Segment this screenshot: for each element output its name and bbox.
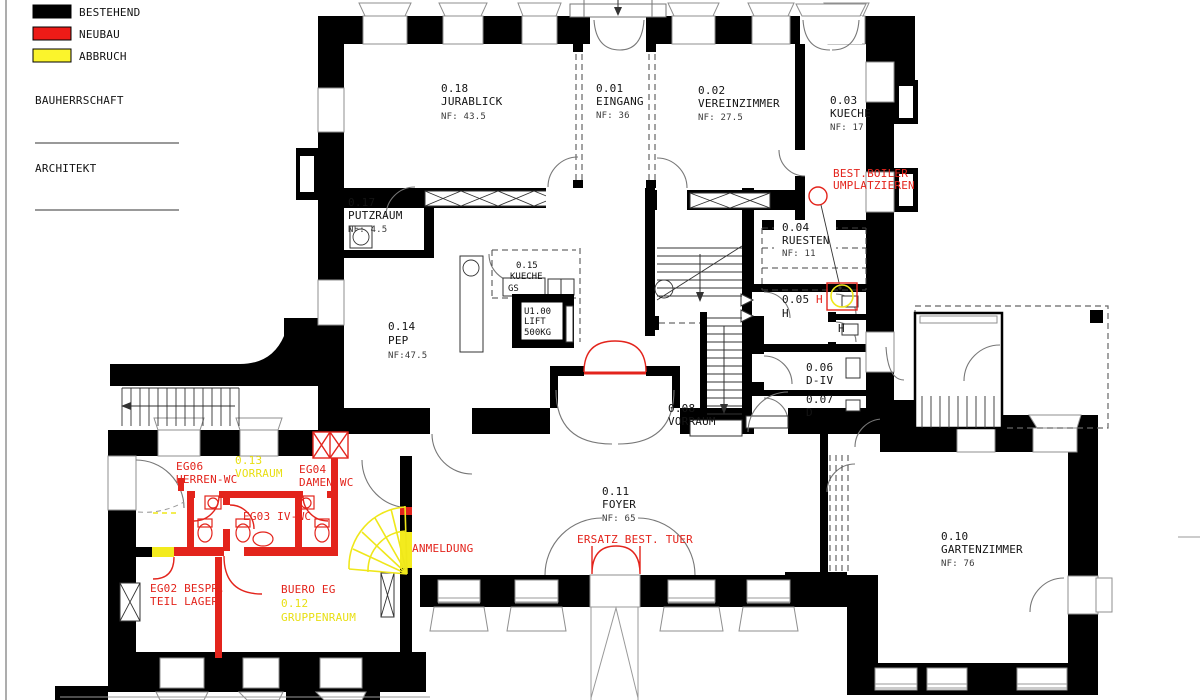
svg-text:EG04: EG04 xyxy=(299,463,326,476)
svg-text:NF: 11: NF: 11 xyxy=(782,249,816,259)
legend-swatch-neubau xyxy=(33,27,71,40)
bauherrschaft-label: BAUHERRSCHAFT xyxy=(35,94,124,107)
svg-text:0.08: 0.08 xyxy=(668,402,695,415)
anmeldung-label: ANMELDUNG xyxy=(412,542,473,555)
svg-text:EG02 BESPR.: EG02 BESPR. xyxy=(150,582,225,595)
shaft-x-icon xyxy=(313,432,348,458)
eg03-label: EG03 IV-WC xyxy=(243,510,311,523)
svg-text:PUTZRAUM: PUTZRAUM xyxy=(348,209,403,222)
svg-text:DAMEN-WC: DAMEN-WC xyxy=(299,476,354,489)
svg-text:H: H xyxy=(782,307,789,320)
svg-text:NF: 65: NF: 65 xyxy=(602,514,636,524)
svg-text:VORRAUM: VORRAUM xyxy=(668,415,716,428)
svg-text:KUECHE: KUECHE xyxy=(510,272,543,282)
svg-text:0.11: 0.11 xyxy=(602,485,629,498)
svg-text:RUESTEN: RUESTEN xyxy=(782,234,830,247)
room-label-06: 0.06 D-IV xyxy=(806,361,833,387)
svg-text:TEIL LAGER: TEIL LAGER xyxy=(150,595,218,608)
svg-text:0.05: 0.05 xyxy=(782,293,809,306)
svg-text:0.18: 0.18 xyxy=(441,82,468,95)
svg-text:0.17: 0.17 xyxy=(348,196,375,209)
abbruch-opening xyxy=(152,547,174,557)
svg-text:D: D xyxy=(806,406,813,419)
svg-text:HERREN-WC: HERREN-WC xyxy=(176,473,237,486)
svg-text:BUERO EG: BUERO EG xyxy=(281,583,336,596)
legend-swatch-abbruch xyxy=(33,49,71,62)
svg-text:0.06: 0.06 xyxy=(806,361,833,374)
ersatz-tuer-label: ERSATZ BEST. TUER xyxy=(577,533,693,546)
boiler-note-line2: UMPLATZIEREN xyxy=(833,179,915,192)
legend-label-neubau: NEUBAU xyxy=(79,28,120,41)
svg-text:VEREINZIMMER: VEREINZIMMER xyxy=(698,97,780,110)
svg-text:NF: 17: NF: 17 xyxy=(830,123,864,133)
eg02-label: EG02 BESPR. TEIL LAGER xyxy=(150,582,225,608)
svg-text:KUECHE: KUECHE xyxy=(830,107,871,120)
svg-text:0.03: 0.03 xyxy=(830,94,857,107)
gs-label: GS xyxy=(508,284,519,294)
svg-text:JURABLICK: JURABLICK xyxy=(441,95,503,108)
svg-text:D-IV: D-IV xyxy=(806,374,833,387)
svg-text:NF: 43.5: NF: 43.5 xyxy=(441,112,486,122)
svg-text:0.15: 0.15 xyxy=(516,261,538,271)
svg-text:GRUPPENRAUM: GRUPPENRAUM xyxy=(281,611,356,624)
svg-text:FOYER: FOYER xyxy=(602,498,636,511)
svg-text:0.07: 0.07 xyxy=(806,393,833,406)
svg-text:PEP: PEP xyxy=(388,334,409,347)
svg-text:EINGANG: EINGANG xyxy=(596,95,644,108)
svg-text:0.13: 0.13 xyxy=(235,454,262,467)
svg-text:0.04: 0.04 xyxy=(782,221,809,234)
svg-text:0.10: 0.10 xyxy=(941,530,968,543)
svg-text:NF:47.5: NF:47.5 xyxy=(388,351,427,361)
svg-text:VORRAUM: VORRAUM xyxy=(235,467,283,480)
svg-text:0.14: 0.14 xyxy=(388,320,415,333)
legend-label-bestehend: BESTEHEND xyxy=(79,6,140,19)
floorplan-canvas: BESTEHEND NEUBAU ABBRUCH BAUHERRSCHAFT A… xyxy=(0,0,1200,700)
legend-swatch-bestehend xyxy=(33,5,71,18)
svg-text:NF: 4.5: NF: 4.5 xyxy=(348,225,387,235)
svg-text:500KG: 500KG xyxy=(524,328,551,338)
h-red-label: H xyxy=(816,293,823,306)
svg-text:LIFT: LIFT xyxy=(524,317,546,327)
architekt-label: ARCHITEKT xyxy=(35,162,97,175)
svg-text:NF: 76: NF: 76 xyxy=(941,559,975,569)
svg-text:NF: 27.5: NF: 27.5 xyxy=(698,113,743,123)
svg-text:U1.00: U1.00 xyxy=(524,307,551,317)
svg-text:0.02: 0.02 xyxy=(698,84,725,97)
svg-text:EG06: EG06 xyxy=(176,460,203,473)
rear-north-entrance xyxy=(796,4,866,50)
h-black-label: H xyxy=(838,322,845,335)
svg-text:NF: 36: NF: 36 xyxy=(596,111,630,121)
legend-label-abbruch: ABBRUCH xyxy=(79,50,127,63)
svg-text:GARTENZIMMER: GARTENZIMMER xyxy=(941,543,1023,556)
svg-text:0.01: 0.01 xyxy=(596,82,623,95)
svg-text:0.12: 0.12 xyxy=(281,597,308,610)
